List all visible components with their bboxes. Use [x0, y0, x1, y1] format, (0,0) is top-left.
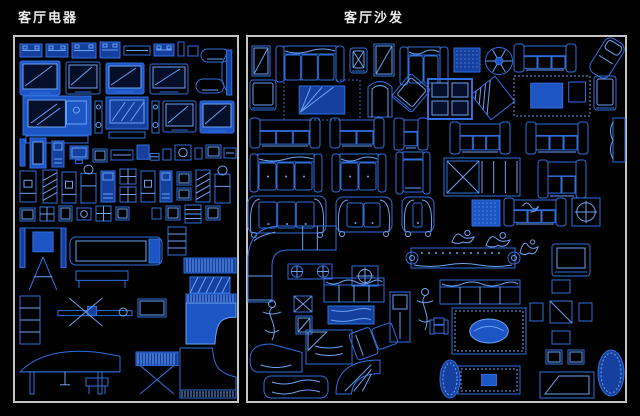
cad-block-disp[interactable] — [141, 171, 155, 202]
cad-block-col[interactable] — [160, 171, 172, 202]
cad-block-colh[interactable] — [196, 170, 210, 202]
cad-block-sofa3top[interactable] — [276, 46, 344, 82]
cad-block-chaiseC[interactable] — [250, 344, 302, 372]
cad-block-table4[interactable] — [530, 280, 592, 344]
cad-block-tv[interactable] — [200, 101, 234, 133]
cad-block-wing[interactable] — [368, 82, 392, 118]
cad-block-flat[interactable] — [224, 148, 236, 158]
cad-block-box[interactable] — [166, 206, 180, 220]
cad-block-box[interactable] — [206, 206, 220, 220]
cad-block-win4[interactable] — [428, 79, 472, 119]
cad-block-cab[interactable] — [296, 316, 312, 334]
cad-block-armfront[interactable] — [552, 244, 590, 276]
cad-block-armtop[interactable] — [350, 48, 367, 73]
cad-block-box[interactable] — [116, 207, 129, 220]
cad-block-tiny[interactable] — [178, 42, 184, 56]
cad-block-rugsm[interactable] — [328, 306, 374, 324]
cad-block-minisofa[interactable] — [430, 318, 448, 334]
cad-block-stool[interactable] — [86, 378, 108, 394]
cad-block-daybed[interactable] — [306, 330, 352, 364]
cad-block-box[interactable] — [93, 149, 107, 162]
cad-block-box[interactable] — [206, 145, 221, 158]
cad-block-cab[interactable] — [252, 46, 270, 76]
cad-block-unit[interactable] — [72, 43, 96, 58]
cad-block-armtop[interactable] — [594, 76, 616, 110]
cad-block-sofa4top[interactable] — [440, 280, 520, 304]
cad-block-dotsq[interactable] — [472, 200, 500, 226]
cad-block-Xbench[interactable] — [288, 264, 332, 279]
cad-block-scrollbench[interactable] — [406, 248, 520, 268]
cad-block-unit[interactable] — [46, 44, 68, 57]
cad-block-sofa3arch[interactable] — [402, 197, 434, 237]
cad-block-sofa4top[interactable] — [324, 278, 384, 302]
cad-block-lounge[interactable] — [196, 79, 224, 93]
cad-block-sofa3top[interactable] — [250, 154, 322, 192]
cad-block-hatchbox[interactable] — [190, 277, 230, 293]
cad-block-bigtv[interactable] — [23, 96, 91, 143]
cad-block-disp[interactable] — [62, 172, 76, 203]
cad-block-treadmill[interactable] — [70, 237, 162, 265]
cad-block-boxc[interactable] — [175, 145, 191, 160]
cad-block-box[interactable] — [177, 188, 191, 200]
cad-block-dotsq[interactable] — [454, 48, 480, 72]
cad-block-cab[interactable] — [374, 44, 394, 76]
cad-block-colh[interactable] — [43, 170, 57, 203]
cad-block-tiny[interactable] — [188, 46, 198, 56]
cad-block-person[interactable] — [263, 301, 281, 341]
cad-block-sofafront[interactable] — [450, 122, 510, 154]
cad-block-bigchaise[interactable] — [264, 376, 328, 398]
cad-block-tiny[interactable] — [195, 148, 202, 159]
cad-block-box[interactable] — [20, 208, 35, 221]
cad-block-sofa1top[interactable] — [396, 152, 430, 194]
cad-block-gridbox[interactable] — [96, 206, 111, 221]
cad-block-box[interactable] — [546, 350, 562, 364]
cad-block-rotlounge[interactable] — [587, 35, 627, 81]
cad-block-flat[interactable] — [111, 150, 133, 160]
cad-block-fig[interactable] — [520, 240, 538, 255]
cad-canvas[interactable]: 客厅电器 客厅沙发 — [0, 0, 640, 416]
cad-block-rugoval[interactable] — [452, 308, 526, 354]
cad-block-col[interactable] — [101, 171, 115, 202]
cad-block-spk2[interactable] — [95, 101, 102, 133]
cad-block-tv[interactable] — [150, 64, 188, 94]
cad-block-box[interactable] — [177, 172, 191, 185]
cad-block-ruground[interactable] — [440, 360, 460, 398]
cad-block-gridbox[interactable] — [120, 187, 136, 202]
cad-block-boxc[interactable] — [77, 208, 91, 220]
cad-block-gridbox[interactable] — [120, 169, 136, 184]
cad-block-rugoval[interactable] — [458, 366, 520, 394]
cad-block-unit[interactable] — [20, 44, 42, 57]
cad-block-flat[interactable] — [124, 46, 150, 55]
cad-block-sofafront[interactable] — [526, 122, 588, 154]
cad-block-hatchsq[interactable] — [471, 76, 514, 120]
cad-block-recliner[interactable] — [349, 319, 400, 360]
cad-block-smtable[interactable] — [294, 296, 312, 312]
cad-block-pc[interactable] — [70, 146, 88, 164]
cad-block-set[interactable] — [514, 76, 590, 116]
cad-drawing[interactable] — [0, 0, 640, 416]
cad-block-sofafront[interactable] — [538, 160, 586, 198]
cad-block-box[interactable] — [59, 206, 72, 221]
cad-block-gridstack[interactable] — [185, 205, 201, 223]
cad-block-spk2[interactable] — [152, 101, 159, 133]
cad-block-flower[interactable] — [486, 48, 513, 75]
cad-block-diamondbench[interactable] — [444, 158, 520, 196]
cad-block-ruground[interactable] — [598, 350, 624, 396]
cad-block-keys[interactable] — [184, 258, 236, 273]
cad-block-sofafront[interactable] — [250, 118, 320, 148]
cad-block-rowing[interactable] — [58, 298, 132, 326]
cad-block-armtop[interactable] — [250, 80, 276, 110]
cad-block-disp[interactable] — [20, 171, 36, 202]
cad-block-tv[interactable] — [106, 63, 144, 94]
cad-block-pckb[interactable] — [137, 145, 159, 160]
cad-block-tv[interactable] — [66, 62, 100, 94]
cad-block-targetbox[interactable] — [572, 198, 600, 226]
cad-block-unit[interactable] — [154, 44, 174, 56]
cad-block-sofa3arch[interactable] — [336, 197, 392, 237]
cad-block-col[interactable] — [52, 141, 64, 167]
cad-block-sofafront[interactable] — [330, 118, 384, 148]
cad-block-gpianoT[interactable] — [186, 294, 236, 344]
cad-block-hatchtv[interactable] — [106, 97, 148, 138]
cad-block-fig[interactable] — [486, 233, 510, 247]
cad-block-lounge[interactable] — [201, 49, 229, 62]
cad-block-gridbox[interactable] — [40, 207, 54, 221]
cad-block-catsofa[interactable] — [504, 198, 566, 226]
cad-block-tv[interactable] — [20, 61, 60, 95]
cad-block-person[interactable] — [417, 289, 433, 331]
cad-block-pen[interactable] — [20, 139, 25, 166]
cad-block-fanchaise[interactable] — [336, 360, 380, 394]
cad-block-benchtrap[interactable] — [540, 372, 594, 398]
cad-block-gpianoO[interactable] — [180, 348, 236, 398]
cad-block-machine[interactable] — [20, 228, 66, 290]
cad-block-bottle[interactable] — [215, 166, 230, 203]
cad-block-sofa3top[interactable] — [332, 154, 386, 192]
cad-block-setrug[interactable] — [284, 80, 360, 120]
cad-block-unit[interactable] — [100, 42, 120, 58]
cad-block-bottle[interactable] — [81, 165, 96, 203]
cad-block-sofafront[interactable] — [394, 118, 428, 150]
cad-block-sofafront[interactable] — [514, 44, 576, 72]
cad-block-tallcab[interactable] — [390, 292, 410, 342]
cad-block-tv[interactable] — [163, 101, 196, 132]
cad-block-tiny[interactable] — [163, 149, 171, 160]
cad-block-bench[interactable] — [76, 271, 128, 288]
cad-block-targetbox[interactable] — [352, 266, 378, 286]
cad-block-sofaside[interactable] — [611, 118, 626, 162]
cad-block-tiny[interactable] — [152, 208, 161, 219]
cad-block-fig[interactable] — [452, 230, 474, 243]
cad-block-gridstack[interactable] — [168, 227, 186, 255]
cad-block-synthstand[interactable] — [136, 352, 178, 394]
cad-block-rack[interactable] — [20, 296, 40, 344]
cad-block-box[interactable] — [138, 299, 166, 317]
cad-block-armtop[interactable] — [391, 73, 430, 113]
cad-block-box[interactable] — [568, 350, 584, 364]
cad-block-darkcol[interactable] — [30, 138, 46, 168]
